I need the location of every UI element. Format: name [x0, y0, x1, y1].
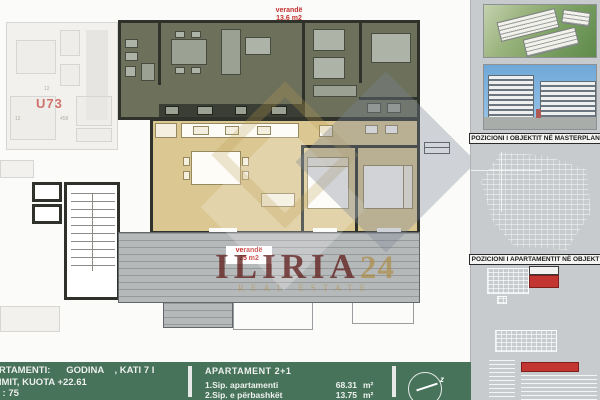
elevation-left-block	[489, 360, 515, 400]
elevation-lines	[521, 375, 597, 400]
neighbour-counter-outline	[76, 128, 112, 142]
double-bed	[371, 33, 411, 63]
elevator	[32, 204, 62, 224]
neighbour-lower-outline	[0, 306, 60, 332]
area-value: 68.31	[323, 380, 357, 390]
watermark-tagline: REAL ESTATE	[165, 283, 445, 293]
caption-masterplan: POZICIONI I OBJEKTIT NË MASTERPLAN	[469, 133, 600, 144]
unit-label: U73	[36, 96, 63, 111]
masterplan-sketch	[481, 152, 591, 250]
dining-table	[171, 39, 207, 65]
highlight-unit-outline	[529, 266, 559, 275]
watermark-suffix: 24	[360, 250, 395, 286]
area-row: 2.Sip. e përbashkët 13.75 m²	[205, 390, 390, 400]
verande-top-line1: verandë	[254, 7, 324, 15]
compass-north-label: z	[440, 375, 444, 384]
terrace-planter-outline	[233, 303, 313, 330]
footer-line-kuota: NIMIT, KUOTA +22.61	[0, 377, 154, 389]
chair	[183, 171, 190, 180]
neighbour-furniture-outline	[60, 64, 80, 86]
interior-wall	[359, 23, 362, 83]
footer-line-scale: 1 : 75	[0, 388, 154, 400]
toilet	[125, 66, 136, 77]
render-aerial-image	[483, 4, 597, 58]
highlight-floor-red	[521, 362, 579, 372]
stove	[197, 106, 213, 115]
stairwell	[64, 182, 120, 300]
stair-steps	[71, 193, 115, 271]
chair	[191, 31, 201, 38]
sidebar: POZICIONI I OBJEKTIT NË MASTERPLAN POZIC…	[470, 0, 600, 400]
interior-wall	[158, 23, 161, 85]
elevator	[32, 182, 62, 202]
watermark-logo: ILIRIA24 REAL ESTATE	[165, 247, 445, 293]
floorplate-mini-plan	[487, 268, 529, 294]
floorplan-listing-sheet: U73 12 12 458 verandë 13.6 m2	[0, 0, 600, 400]
footer-left-block: ARTAMENTI: GODINA , KATI 7 I NIMIT, KUOT…	[0, 365, 154, 400]
render-street-image	[483, 64, 597, 130]
footer-bar: ARTAMENTI: GODINA , KATI 7 I NIMIT, KUOT…	[0, 362, 471, 400]
sofa	[221, 29, 241, 75]
apartment-type-title: APARTAMENT 2+1	[205, 366, 390, 376]
neighbour-table-outline	[76, 96, 112, 126]
wardrobe	[313, 85, 357, 97]
dimension-text: 12	[15, 116, 21, 122]
sink	[125, 52, 138, 61]
floorplate-mini-plan	[497, 296, 507, 304]
bed	[313, 57, 345, 79]
area-label: 1.Sip. apartamenti	[205, 380, 323, 390]
dimension-text: 458	[60, 116, 68, 122]
masterplan-road	[471, 170, 541, 171]
coffee-table	[245, 37, 271, 55]
chair	[191, 67, 201, 74]
stove	[193, 126, 209, 135]
terrace-planter-outline	[352, 303, 414, 324]
shower	[141, 63, 155, 81]
sink	[165, 106, 179, 115]
footer-apartment-block: APARTAMENT 2+1 1.Sip. apartamenti 68.31 …	[205, 366, 390, 400]
chair	[175, 31, 185, 38]
area-unit: m²	[363, 390, 373, 400]
caption-apartment-position: POZICIONI I APARTAMENTIT NË OBJEKT	[469, 254, 600, 265]
dimension-text: 12	[44, 86, 50, 92]
highlight-unit-red	[529, 275, 559, 288]
neighbour-bed-outline	[16, 40, 56, 74]
neighbour-wall-outline	[0, 160, 34, 178]
area-value: 13.75	[323, 390, 357, 400]
appliance	[235, 106, 247, 115]
footer-divider	[188, 366, 192, 397]
chair	[175, 67, 185, 74]
footer-divider	[392, 366, 396, 397]
stair-divider	[92, 193, 93, 271]
area-unit: m²	[363, 380, 373, 390]
bed	[313, 29, 345, 51]
chair	[183, 157, 190, 166]
terrace-extension	[163, 303, 233, 328]
area-row: 1.Sip. apartamenti 68.31 m²	[205, 380, 390, 390]
sink	[125, 39, 138, 48]
floorplate-mini-plan	[495, 330, 557, 352]
area-label: 2.Sip. e përbashkët	[205, 390, 323, 400]
footer-line-building: ARTAMENTI: GODINA , KATI 7 I	[0, 365, 154, 377]
masterplan-road	[501, 152, 502, 212]
neighbour-furniture-outline	[60, 30, 80, 56]
fridge	[155, 123, 177, 138]
watermark-brand: ILIRIA	[215, 247, 360, 286]
